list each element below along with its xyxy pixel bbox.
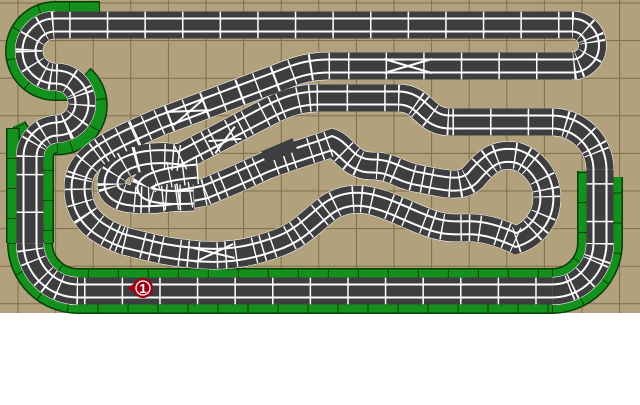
svg-text:1: 1 — [139, 281, 146, 296]
